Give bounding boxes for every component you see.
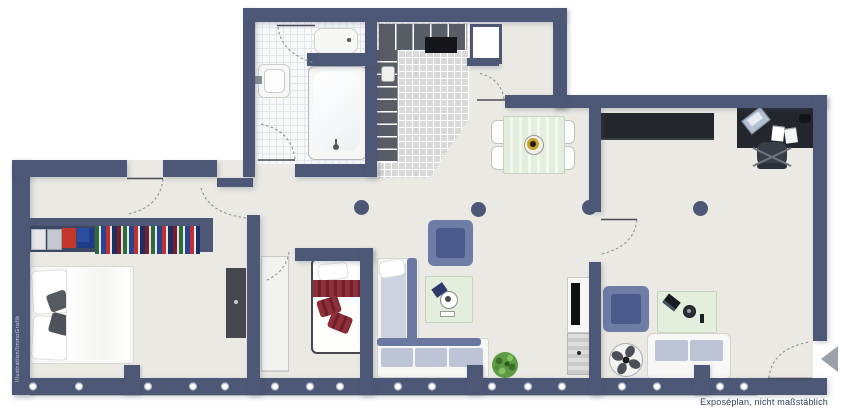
hanging-clothes (95, 226, 200, 254)
wall-bathroom-east (365, 20, 377, 177)
table-plate-center (445, 296, 451, 302)
clothes-rack-end (200, 218, 213, 252)
papers (771, 125, 785, 141)
table-remote (440, 311, 455, 317)
plant (491, 351, 519, 379)
wall-exterior-top (243, 8, 565, 22)
wall-bedroom2-east (360, 248, 373, 395)
desk-lamp (799, 114, 811, 123)
entrance-arrow-icon (821, 346, 838, 372)
entry-rack-handle (381, 66, 395, 82)
wall-bathroom-partition (307, 53, 377, 66)
washbasin-bowl (264, 69, 285, 93)
wall-living-divider-upper (589, 108, 601, 212)
bed-blanket (313, 280, 360, 297)
window-pier (694, 365, 710, 395)
sofa-cushion (381, 348, 413, 367)
duvet (66, 268, 131, 360)
sofa-cushion (655, 340, 688, 361)
folded-clothes (31, 229, 46, 250)
entry-shelf-box (425, 37, 457, 53)
wall-bedroom-divider (247, 215, 260, 395)
toilet-flush-dot (347, 38, 351, 42)
wall-bathroom-west (243, 8, 255, 177)
folded-clothes (47, 229, 62, 250)
sofa-cushion (415, 348, 447, 367)
fan-icon (607, 341, 645, 379)
watermark-text: Illustration/ImmoGrafik (15, 302, 21, 382)
window-pier (124, 365, 140, 395)
sofa-cushion (690, 340, 723, 361)
door-leaf-bedroom1 (217, 178, 253, 187)
cabinet-knob (234, 300, 238, 304)
structural-column (471, 202, 486, 217)
office-chair-back (757, 163, 787, 169)
fruit-bowl-center (530, 141, 536, 147)
folded-clothes (77, 228, 94, 248)
wall-duct-base (467, 58, 499, 66)
armchair-seat (436, 228, 465, 258)
wall-storage-south (505, 95, 565, 108)
wall-exterior-right (813, 95, 827, 341)
washbasin-tap (255, 76, 262, 84)
l-sofa-back (377, 338, 481, 346)
folded-clothes (62, 228, 76, 248)
toilet (314, 28, 358, 54)
bathtub-inner (313, 71, 360, 151)
bed-pillow (317, 261, 349, 281)
wall-exterior-top-right (553, 95, 827, 108)
wall-exterior-step (553, 8, 567, 108)
sideboard (596, 113, 714, 140)
wardrobe (261, 256, 289, 372)
floor-fan (607, 341, 645, 379)
disclaimer-text: Exposéplan, nicht maßstäblich (560, 397, 828, 407)
armchair-seat (611, 294, 641, 324)
plant-icon (491, 351, 519, 379)
structural-column (354, 200, 369, 215)
tv-cabinet-knob (577, 351, 581, 355)
table-remote (700, 314, 704, 323)
tv (571, 283, 580, 325)
floor-plan: Exposéplan, nicht maßstäblich Illustrati… (0, 0, 849, 420)
wall-exterior-top-left (12, 160, 127, 177)
table-disc-dot (687, 309, 691, 313)
papers (784, 127, 798, 144)
wall-exterior-top-left (163, 160, 217, 177)
wall-living-divider-lower (589, 262, 601, 395)
structural-column (693, 201, 708, 216)
window-pier (467, 365, 483, 395)
